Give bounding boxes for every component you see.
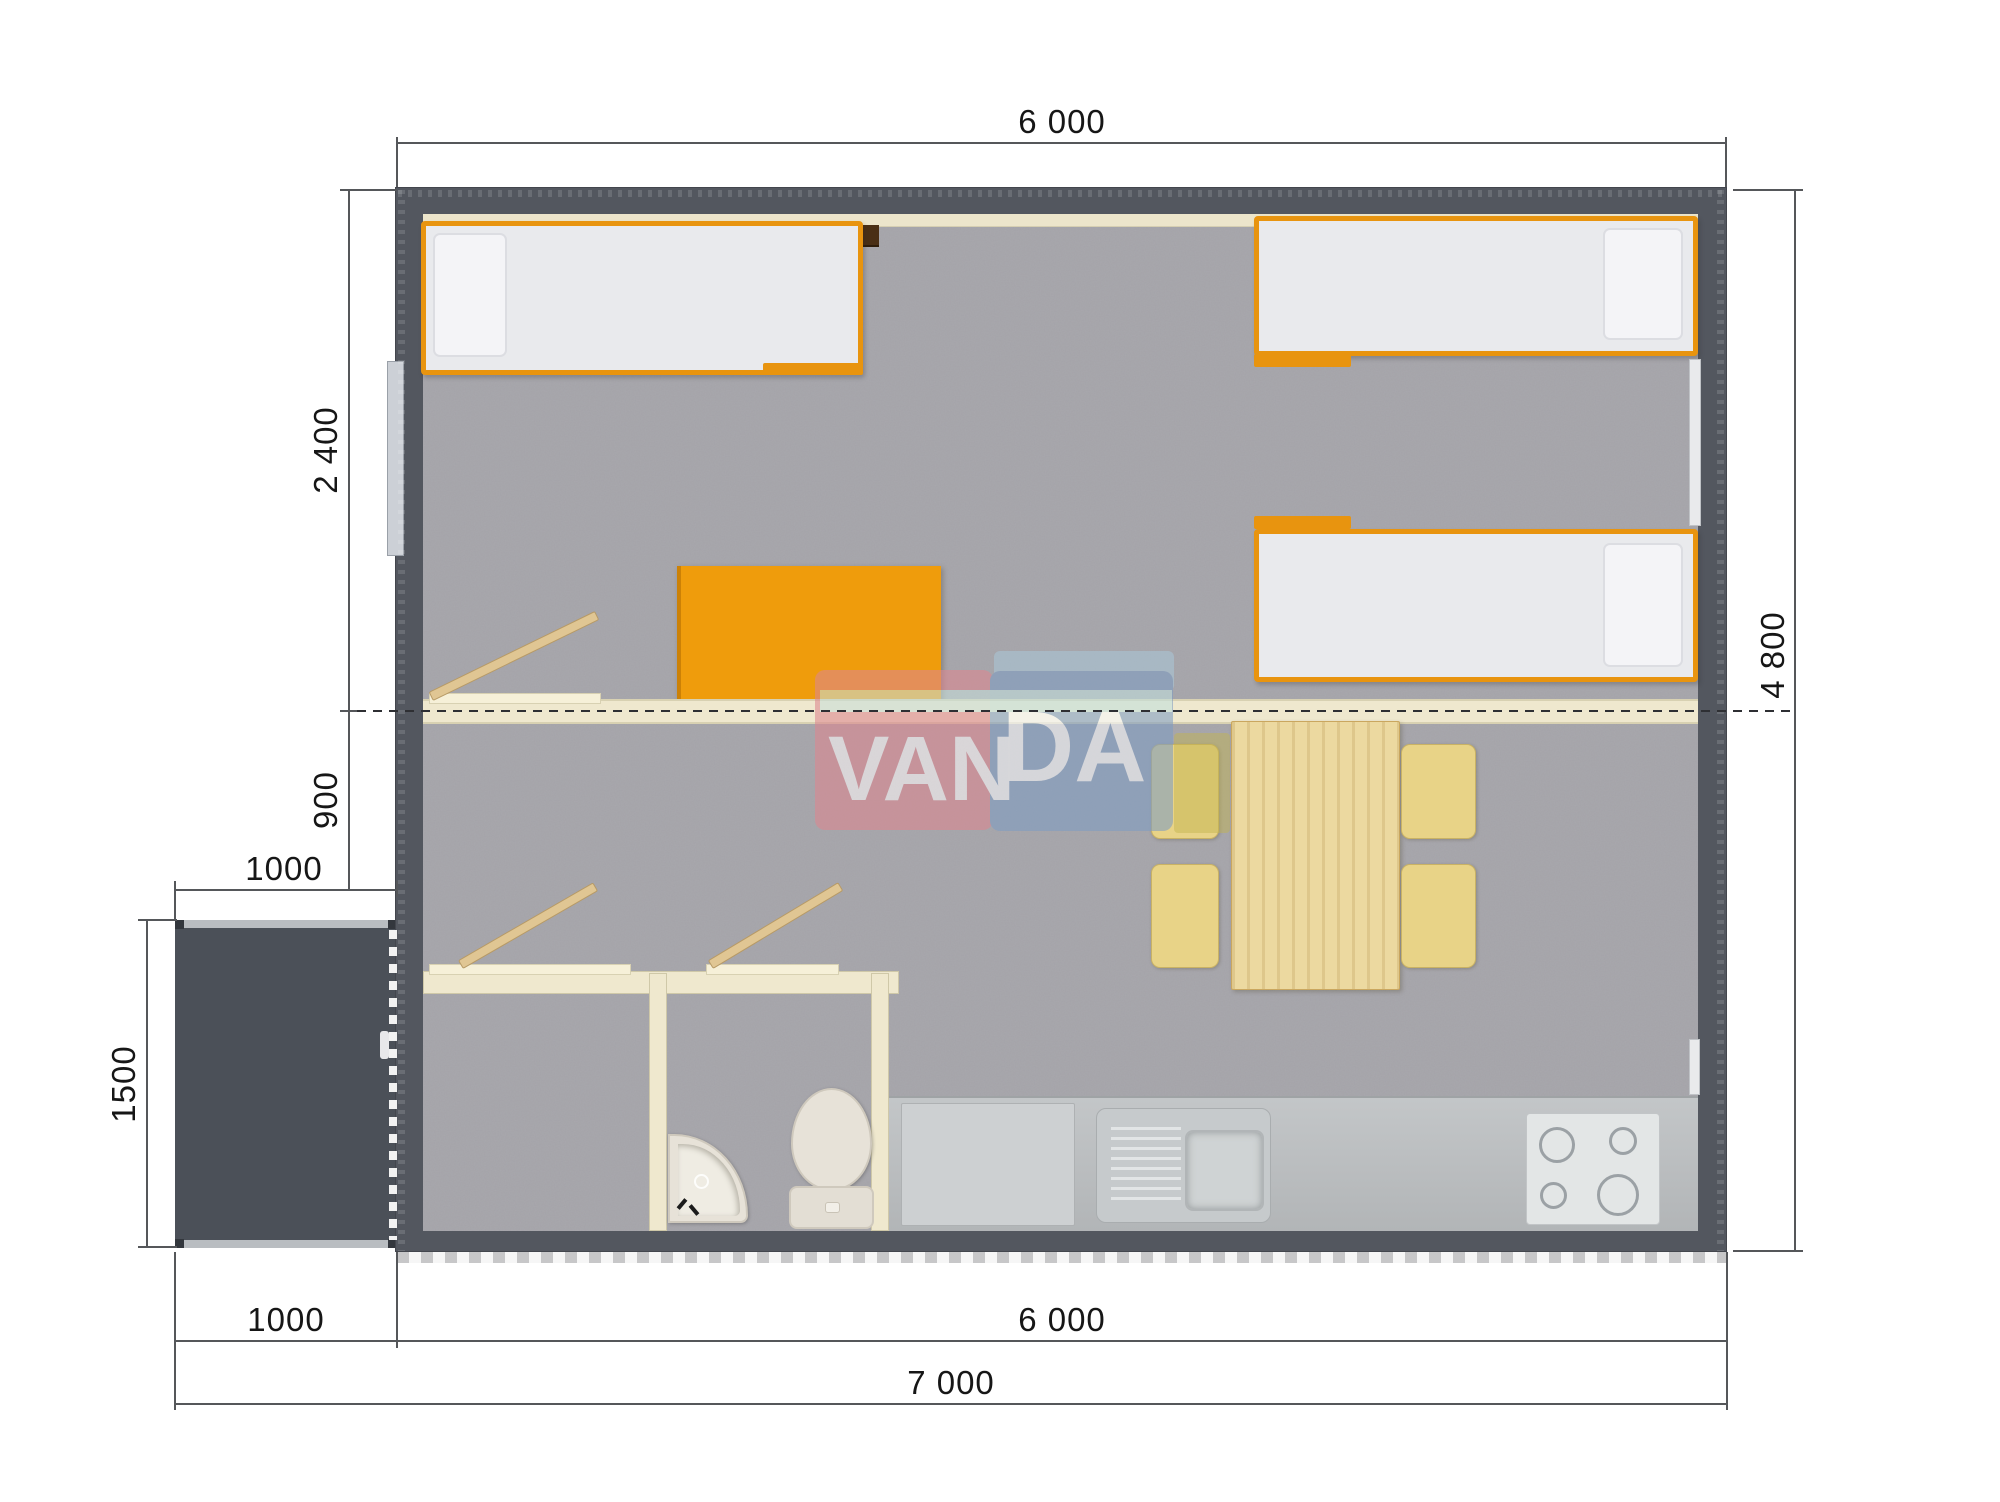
- flush-button-icon: [825, 1202, 840, 1213]
- dim-line-porch-depth: [146, 920, 148, 1248]
- dim-tick: [1733, 1250, 1803, 1252]
- bathroom-wall-vertical-left: [649, 973, 667, 1231]
- bed-rail: [1254, 354, 1351, 367]
- door-threshold: [429, 693, 601, 704]
- burner-icon: [1539, 1127, 1575, 1163]
- dim-line-top: [397, 142, 1727, 144]
- wall-corrugation: [398, 190, 405, 1251]
- dim-line-porch-top: [175, 889, 397, 891]
- south-wall-corrugation: [397, 1252, 1727, 1263]
- watermark-text-van: VAN: [828, 723, 1015, 815]
- porch-edge-top: [177, 920, 395, 928]
- dim-tick: [174, 881, 176, 920]
- burner-icon: [1540, 1182, 1567, 1209]
- door-threshold: [429, 964, 631, 975]
- dim-extension: [396, 137, 398, 187]
- burner-icon: [1597, 1174, 1639, 1216]
- chair: [1401, 864, 1476, 968]
- dim-extension: [1726, 1252, 1728, 1410]
- bed-rail: [1254, 516, 1351, 529]
- porch-edge-bottom: [177, 1240, 395, 1248]
- dim-tick: [340, 710, 357, 712]
- dim-line-left: [348, 190, 350, 890]
- dim-line-bottom-2: [175, 1403, 1727, 1405]
- burner-icon: [1609, 1127, 1637, 1155]
- pillow: [1603, 228, 1683, 340]
- stove-cooktop: [1526, 1113, 1660, 1225]
- bed-single-top-right: [1254, 216, 1698, 356]
- watermark-shape: [1174, 733, 1230, 833]
- dim-tick: [396, 881, 398, 897]
- dim-label-porch-depth: 1500: [105, 1045, 143, 1122]
- dim-label-porch-width-bottom: 1000: [247, 1301, 324, 1339]
- module-joint-line: [341, 710, 1795, 712]
- dim-tick: [138, 1246, 177, 1248]
- dim-label-partition-offset: 900: [307, 771, 345, 829]
- watermark-text-da: DA: [1002, 697, 1146, 797]
- dim-label-house-width-bottom: 6 000: [1018, 1301, 1106, 1339]
- bed-rail: [763, 363, 863, 375]
- dim-label-house-depth: 4 800: [1754, 611, 1792, 699]
- dim-label-top-width: 6 000: [1018, 103, 1106, 141]
- dim-tick: [340, 189, 397, 191]
- chair: [1401, 744, 1476, 839]
- vanda-watermark: VAN DA: [806, 645, 1246, 845]
- dim-label-total-width: 7 000: [907, 1364, 995, 1402]
- door-threshold: [706, 964, 839, 975]
- dim-line-right: [1794, 190, 1796, 1252]
- bed-single-right: [1254, 529, 1698, 682]
- kitchen-cabinet: [901, 1103, 1075, 1226]
- porch: [175, 920, 397, 1248]
- window-kitchen: [1689, 1039, 1700, 1095]
- porch-post: [175, 920, 184, 929]
- pillow: [433, 233, 507, 357]
- dim-tick: [1733, 189, 1803, 191]
- entry-door-handle-icon: [380, 1031, 389, 1059]
- dim-label-bedroom-depth: 2 400: [307, 406, 345, 494]
- wall-corrugation: [398, 190, 1726, 197]
- kitchen-sink-unit: [1096, 1108, 1271, 1223]
- chair: [1151, 864, 1219, 968]
- floor-plan-canvas: VAN DA 6 000 2 400 900 1000 1500 4 800 1…: [0, 0, 2000, 1502]
- sink-basin: [1185, 1130, 1264, 1211]
- dim-extension: [396, 1252, 398, 1348]
- drainboard: [1111, 1127, 1181, 1205]
- dim-label-porch-width-top: 1000: [245, 850, 322, 888]
- dining-table: [1231, 721, 1400, 990]
- dim-line-bottom-1: [175, 1340, 1727, 1342]
- window-right: [1689, 359, 1701, 526]
- wall-corrugation: [1717, 190, 1724, 1251]
- dim-extension: [1725, 137, 1727, 187]
- dim-extension: [174, 1252, 176, 1410]
- toilet: [791, 1088, 872, 1191]
- entry-door-threshold: [389, 930, 397, 1240]
- pillow: [1603, 543, 1683, 667]
- bed-single-left: [421, 221, 863, 375]
- dim-tick: [138, 919, 177, 921]
- drain-icon: [694, 1174, 709, 1189]
